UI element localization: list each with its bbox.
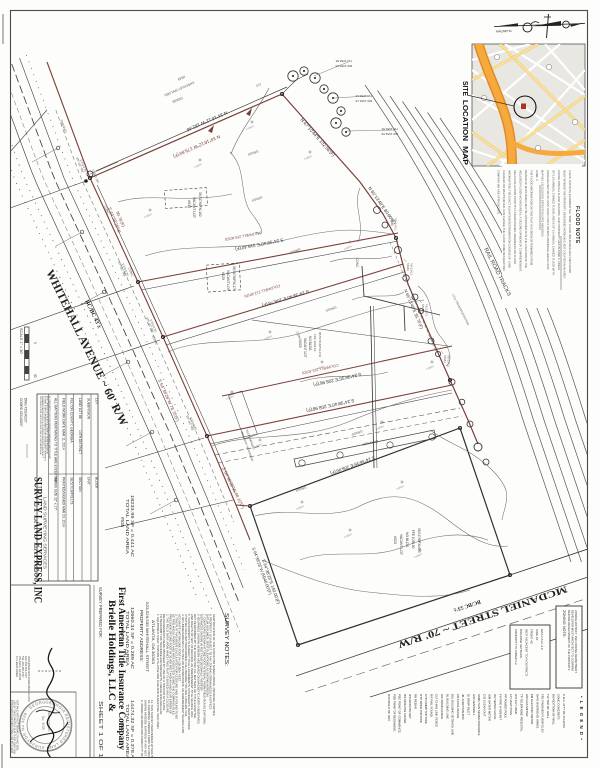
svg-text:IN CONFORMITY WITH THE MINIMUM: IN CONFORMITY WITH THE MINIMUM STANDARDS… (48, 396, 51, 459)
svg-text:SCALE 1" = 30': SCALE 1" = 30' (19, 328, 23, 355)
svg-text:UNIT: UNIT (87, 477, 91, 485)
svg-text:Brielle Holdings, LLC &: Brielle Holdings, LLC & (106, 600, 117, 712)
svg-text:LAND SURVEYING SERVICES: LAND SURVEYING SERVICES (42, 497, 48, 569)
svg-text:FULTON COUNTY, GEORGIA: FULTON COUNTY, GEORGIA (70, 398, 74, 443)
svg-text:523,529,535 WHITEHALL STREET: 523,529,535 WHITEHALL STREET (145, 602, 150, 673)
svg-text:MAGNETIC: MAGNETIC (496, 29, 513, 34)
svg-text:TP TELEPHONE PEDESTAL: TP TELEPHONE PEDESTAL (520, 694, 524, 732)
svg-text:NO BLDG.: NO BLDG. (308, 336, 312, 351)
svg-text:BUILDING SETBACK: BUILDING SETBACK (519, 629, 523, 658)
svg-text:OHW OVERHEAD WIRES: OHW OVERHEAD WIRES (535, 694, 539, 728)
svg-text:OF 0.2% ANNUAL CHANCE FLOOD; A: OF 0.2% ANNUAL CHANCE FLOOD; AREAS OF 1%… (552, 170, 556, 275)
svg-text:CB CATCH BASIN: CB CATCH BASIN (456, 694, 460, 718)
svg-text:0: 0 (33, 342, 37, 344)
svg-text:POB POINT OF BEGINNING: POB POINT OF BEGINNING (392, 694, 396, 732)
svg-text:ZONING DISTRICT, PER ZONING DE: ZONING DISTRICT, PER ZONING DEPARTMENT. (574, 610, 578, 674)
svg-text:FRONT 40': FRONT 40' (530, 629, 534, 644)
svg-text:08,517/6/PXL655: 08,517/6/PXL655 (417, 528, 421, 553)
svg-text:LOT: LOT (95, 398, 99, 404)
svg-text:BSL BUILDING SETBACK LINE: BSL BUILDING SETBACK LINE (451, 694, 455, 735)
svg-text:C/O CLEAN OUT: C/O CLEAN OUT (482, 694, 486, 717)
svg-text:LP LIGHT POLE: LP LIGHT POLE (509, 694, 513, 715)
svg-text:REVIEW OF MAPS WHICH MAY BE AP: REVIEW OF MAPS WHICH MAY BE APPROXIMATE … (524, 170, 528, 268)
svg-text:MAX F.A.R. 2.0: MAX F.A.R. 2.0 (540, 629, 544, 650)
svg-text:POC POINT OF COMMENCE: POC POINT OF COMMENCE (398, 694, 402, 733)
svg-text:VACANT LOT: VACANT LOT (192, 197, 196, 218)
svg-text:#529: #529 (221, 272, 225, 280)
svg-text:BW 1055.08: BW 1055.08 (335, 64, 352, 68)
svg-text:08,517/6/PXL179: 08,517/6/PXL179 (232, 266, 236, 291)
svg-text:MAP NO. 13121C0341E EF: MAP NO. 13121C0341E EFFECTIVE DATE 06/18… (541, 170, 545, 237)
svg-text:SIDE 10': SIDE 10' (535, 629, 539, 641)
svg-text:14TH DISTRICT: 14TH DISTRICT (78, 430, 82, 454)
svg-text:I HAVE THIS DATE EXAMINED THE: I HAVE THIS DATE EXAMINED THE "FIRM" FLO… (568, 170, 572, 273)
svg-text:VACANT LOT: VACANT LOT (303, 338, 307, 358)
svg-text:SHEET 1 OF 1: SHEET 1 OF 1 (97, 701, 103, 758)
svg-text:FFE FINISHED FLOOR ELEV: FFE FINISHED FLOOR ELEV (541, 694, 545, 733)
svg-text:#535: #535 (187, 200, 191, 208)
svg-text:SSMH: SSMH (406, 263, 410, 271)
svg-text:12660.34 SF = 0.289 AC: 12660.34 SF = 0.289 AC (130, 607, 135, 669)
svg-text:SSMH: SSMH (421, 304, 425, 312)
svg-text:AVERAGE DEPTHS OF LESS THAN 1: AVERAGE DEPTHS OF LESS THAN 1 FOOT OR WI… (546, 170, 550, 270)
svg-text:#529: #529 (120, 629, 125, 640)
svg-text:BL BUILDING LINE: BL BUILDING LINE (445, 694, 449, 719)
svg-text:ZONE: X: ZONE: X (535, 170, 539, 181)
svg-text:HW HEADWALL: HW HEADWALL (472, 694, 476, 716)
svg-text:FFE 1042.10: FFE 1042.10 (313, 334, 317, 352)
svg-text:ZONING NOTE:: ZONING NOTE: (562, 610, 566, 637)
svg-text:R/W RIGHT OF WAY: R/W RIGHT OF WAY (387, 694, 391, 721)
svg-text:BEFORE DEVELOPMENT OF THE PROP: BEFORE DEVELOPMENT OF THE PROPERTY, (567, 610, 571, 671)
svg-text:18233.99 SF = 0.441 AC: 18233.99 SF = 0.441 AC (130, 495, 135, 557)
svg-text:BW 1054.18: BW 1054.18 (355, 99, 372, 103)
svg-text:TW 1056.18: TW 1056.18 (355, 94, 372, 98)
svg-text:TOTAL LAND AREA: TOTAL LAND AREA (125, 704, 130, 760)
svg-text:NOT VALID WITHOUT SIGNATURE AN: NOT VALID WITHOUT SIGNATURE AND SEAL (15, 700, 18, 752)
svg-text:IN MY OPINION THE PROPERTY DES: IN MY OPINION THE PROPERTY DESCRIBED HER… (563, 170, 567, 278)
svg-text:ALL MATTERS PERTAINING TO TITL: ALL MATTERS PERTAINING TO TITLE ARE EXCE… (54, 398, 58, 483)
svg-text:FLOOD NOTE: FLOOD NOTE (574, 206, 580, 244)
svg-text:RIM 1042.1: RIM 1042.1 (410, 263, 413, 276)
svg-text:GW GUY WIRE: GW GUY WIRE (514, 694, 518, 714)
svg-text:PRINTED/SIGNED MAR 20, 2014: PRINTED/SIGNED MAR 20, 2014 (62, 477, 66, 527)
svg-text:SURVEY NOTES:: SURVEY NOTES: (223, 613, 229, 666)
svg-text:FIELD WORK DATE MAR 11, 2014: FIELD WORK DATE MAR 11, 2014 (62, 398, 66, 450)
svg-text:NO BLDG.: NO BLDG. (405, 532, 409, 548)
svg-text:08,517/16/PXL179: 08,517/16/PXL179 (70, 477, 74, 504)
svg-text:JB JUNCTION BOX: JB JUNCTION BOX (461, 694, 465, 720)
svg-text:WM WATER METER: WM WATER METER (488, 694, 492, 721)
svg-text:SURVEY PREPARED FOR:: SURVEY PREPARED FOR: (98, 587, 103, 638)
svg-text:08,517/6/PXL182: 08,517/6/PXL182 (198, 192, 202, 217)
svg-text:VACANT LOT: VACANT LOT (226, 270, 230, 291)
svg-text:WV WATER VALVE: WV WATER VALVE (493, 694, 497, 719)
svg-text:THE FLOOD INFORMATION ON THIS: THE FLOOD INFORMATION ON THIS PLAT HAS B… (530, 170, 534, 266)
svg-text:FIELD EVALUATION STUDY BY A PR: FIELD EVALUATION STUDY BY A PROFESSIONAL… (513, 170, 517, 264)
svg-text:TOTAL LAND AREA: TOTAL LAND AREA (125, 499, 130, 555)
svg-text:DEVELOPER MUST ARCHITECT TO CO: DEVELOPER MUST ARCHITECT TO CONFIRM (571, 610, 575, 671)
svg-text:RIM 1042.1: RIM 1042.1 (425, 304, 428, 317)
svg-text:PAPER SIZE 22" x 17": PAPER SIZE 22" x 17" (54, 477, 58, 511)
svg-text:#529: #529 (298, 340, 302, 348)
svg-text:No. 3039: No. 3039 (41, 716, 45, 730)
svg-text:MAP: MAP (461, 146, 470, 165)
svg-text:IPF IRON PIN FOUND: IPF IRON PIN FOUND (403, 694, 407, 723)
svg-text:HAVING SPECIAL FLOOD HAZARDS.: HAVING SPECIAL FLOOD HAZARDS. SAID PROPE… (557, 170, 561, 270)
svg-text:COMPANY WE ARE APPROACHED.: COMPANY WE ARE APPROACHED. (497, 170, 501, 215)
svg-text:FH FIRE HYDRANT: FH FIRE HYDRANT (498, 694, 502, 720)
svg-text:TOTAL LAND AREA: TOTAL LAND AREA (125, 611, 130, 667)
svg-text:CHANGES OR WHATSOEVER, CAN CHA: CHANGES OR WHATSOEVER, CAN CHANGE THE FL… (502, 170, 506, 271)
svg-text:TW 1056.58: TW 1056.58 (335, 59, 352, 63)
svg-text:LAND LOT 86: LAND LOT 86 (78, 398, 82, 419)
svg-text:R/F RAIL FOUND: R/F RAIL FOUND (429, 694, 433, 717)
svg-text:SECTION: SECTION (78, 477, 82, 492)
svg-text:• L E G E N D •: • L E G E N D • (579, 696, 584, 741)
svg-text:FFE 1036.80: FFE 1036.80 (411, 530, 415, 549)
svg-text:OTP OPEN TOP PIPE: OTP OPEN TOP PIPE (419, 694, 423, 723)
svg-text:CONC: CONC (355, 258, 359, 268)
svg-text:TW TOP OF WALL: TW TOP OF WALL (546, 694, 550, 719)
svg-text:CTP CRIMP TOP PIPE: CTP CRIMP TOP PIPE (424, 694, 428, 724)
svg-text:#523: #523 (393, 536, 397, 544)
svg-text:RIM 1042.1: RIM 1042.1 (447, 355, 450, 368)
svg-text:LOCATION: LOCATION (461, 100, 470, 141)
svg-text:PROPERTY IS ZONED I-2: PROPERTY IS ZONED I-2 (514, 629, 518, 665)
svg-text:PROPERTY ADDRESS:: PROPERTY ADDRESS: (139, 610, 144, 662)
svg-text:CERTIFICATION OF THE SURVEYOR: CERTIFICATION OF THE SURVEYOR NAMED ABOV… (212, 614, 216, 717)
svg-text:INFORMATION, THE EXACT ELEVATI: INFORMATION, THE EXACT ELEVATION DETERMI… (508, 170, 512, 268)
svg-text:#523: #523 (120, 722, 125, 733)
svg-text:GM GAS METER: GM GAS METER (525, 694, 529, 716)
svg-text:BW 1053.56: BW 1053.56 (381, 132, 398, 136)
svg-text:CLF CHAIN LINK FENCE: CLF CHAIN LINK FENCE (435, 694, 439, 727)
svg-text:14474.32 SF = 0.378 AC: 14474.32 SF = 0.378 AC (130, 700, 135, 762)
svg-text:INCLUDED FLOOD HAZARD AREAS. A: INCLUDED FLOOD HAZARD AREAS. A SECOND OP… (519, 170, 523, 272)
svg-text:PP POWER POLE: PP POWER POLE (504, 694, 508, 718)
svg-text:RB REBAR: RB REBAR (414, 694, 418, 709)
svg-text:WF WOOD FENCE: WF WOOD FENCE (440, 694, 444, 719)
svg-text:30: 30 (33, 374, 37, 378)
svg-text:IPS IRON PIN SET: IPS IRON PIN SET (408, 694, 412, 719)
svg-text:SSMH: SSMH (443, 355, 447, 363)
svg-text:C.O.A. CITY OF ATLANTA: C.O.A. CITY OF ATLANTA (562, 694, 566, 728)
svg-text:SITE: SITE (461, 81, 470, 96)
svg-text:DWG #20140297: DWG #20140297 (24, 398, 28, 423)
svg-text:SSMH SAN SEWER MANHOLE: SSMH SAN SEWER MANHOLE (477, 694, 481, 736)
svg-text:BW BOTTOM OF WALL: BW BOTTOM OF WALL (551, 694, 555, 726)
svg-text:ATLANTA, GA 30303: ATLANTA, GA 30303 (151, 620, 156, 665)
svg-text:INFO@SURVEYLANDEXPRESS.COM: INFO@SURVEYLANDEXPRESS.COM (27, 656, 31, 701)
svg-text:#535: #535 (120, 517, 125, 528)
svg-text:CONC CONCRETE: CONC CONCRETE (557, 694, 561, 720)
svg-text:USE BY THIRD PARTIES IS AT THE: USE BY THIRD PARTIES IS AT THEIR OWN RIS… (13, 700, 16, 755)
svg-text:BLOCK: BLOCK (95, 477, 99, 489)
svg-text:EM ELECTRIC METER: EM ELECTRIC METER (530, 694, 534, 724)
svg-text:DI DROP INLET: DI DROP INLET (467, 694, 471, 715)
svg-text:SUBDIVISION: SUBDIVISION (87, 398, 91, 420)
svg-text:08,517/16/PXL179: 08,517/16/PXL179 (318, 332, 322, 357)
svg-text:(NOT ADJACENT TO R DISTRICT): (NOT ADJACENT TO R DISTRICT) (524, 629, 528, 676)
svg-text:VACANT LOT: VACANT LOT (399, 534, 403, 555)
svg-text:COORD #20140297: COORD #20140297 (19, 398, 23, 427)
